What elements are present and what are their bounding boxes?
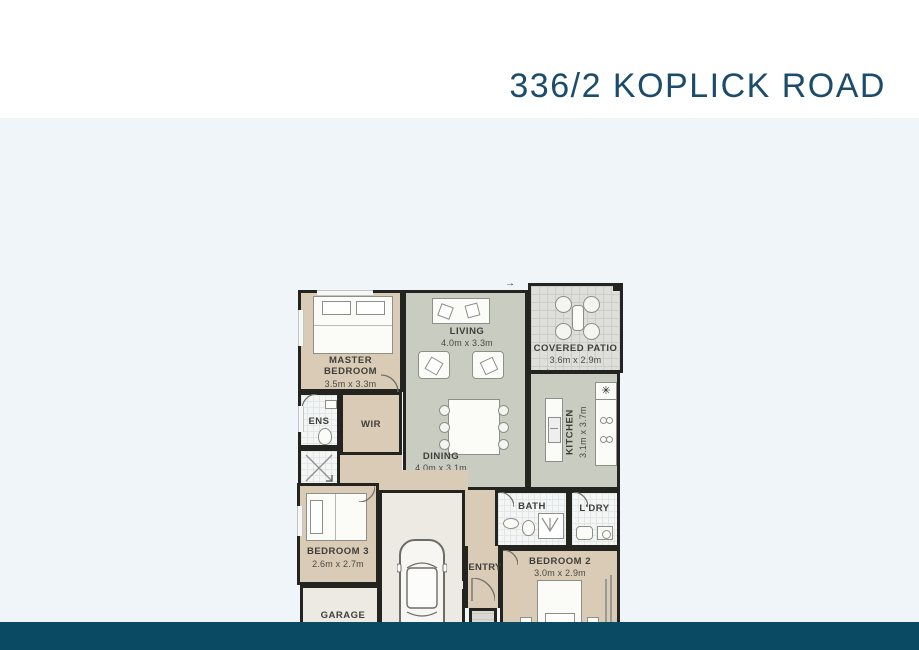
robe-door-icon (605, 579, 607, 627)
room-label: LIVING (431, 326, 503, 337)
arrow-icon: → (541, 364, 551, 375)
patio-table-icon (572, 305, 584, 331)
door-arc-icon (573, 492, 588, 507)
sink-icon (548, 417, 561, 443)
island-bench (545, 398, 563, 462)
sink-icon (503, 518, 519, 529)
toilet-icon (318, 428, 332, 445)
footer-bar (0, 622, 919, 650)
room-covered-patio: COVERED PATIO 3.6m x 2.9m (528, 283, 623, 373)
bed-icon (306, 493, 367, 541)
bed-icon (313, 296, 393, 354)
armchair-icon (472, 351, 504, 379)
patio-chair-icon (555, 323, 572, 340)
room-dims: 3.0m x 2.9m (503, 568, 617, 578)
window-gap (317, 290, 373, 296)
hallway (400, 470, 468, 490)
room-wir: WIR (340, 392, 402, 455)
room-bedroom-2: BEDROOM 2 3.0m x 2.9m (500, 548, 620, 633)
patio-post (613, 283, 621, 291)
door-arc-icon (381, 374, 399, 392)
dining-chair-icon (439, 422, 450, 433)
cooktop-icon (600, 417, 613, 443)
washer-icon (597, 526, 613, 540)
room-label: ENS (301, 416, 337, 427)
room-label: BEDROOM 2 (503, 556, 617, 567)
room-label: GARAGE (307, 610, 379, 621)
dining-table-icon (448, 399, 500, 455)
arrow-icon: → (505, 278, 515, 289)
armchair-icon (418, 351, 450, 379)
door-arc-icon (499, 492, 514, 507)
door-arc-icon (359, 486, 375, 502)
sink-icon (325, 400, 337, 409)
pillow-icon (356, 301, 385, 315)
room-entry: ENTRY (465, 546, 501, 608)
door-arc-icon (471, 578, 495, 602)
kitchen-counter: ✳ (595, 382, 617, 466)
room-dims: 2.6m x 2.7m (300, 559, 376, 569)
door-arc-icon (302, 394, 317, 409)
dining-chair-icon (439, 405, 450, 416)
room-label: BEDROOM 3 (300, 546, 376, 557)
shower-icon (304, 453, 334, 483)
floor-plan: LIVING 4.0m x 3.3m DINING 4.0m x 3.1m (293, 278, 633, 650)
room-living-dining: LIVING 4.0m x 3.3m DINING 4.0m x 3.1m (403, 290, 528, 490)
robe-door-icon (610, 575, 612, 625)
window-gap (297, 506, 303, 536)
pillow-icon (310, 500, 323, 534)
room-label: WIR (343, 419, 399, 430)
room-label: ENTRY (466, 562, 504, 573)
pillow-icon (322, 301, 351, 315)
dining-chair-icon (498, 405, 509, 416)
sofa-icon (432, 298, 490, 324)
patio-chair-icon (583, 323, 600, 340)
dining-chair-icon (498, 422, 509, 433)
patio-chair-icon (555, 296, 572, 313)
door-arc-icon (503, 550, 518, 565)
shower-icon (538, 513, 564, 539)
tub-icon (576, 526, 593, 540)
room-dims: 3.1m x 3.7m (577, 398, 589, 466)
dining-chair-icon (439, 439, 450, 450)
flyer-page: 336/2 KOPLICK ROAD LIVING 4.0m x 3.3m (0, 0, 919, 650)
toilet-icon (522, 520, 535, 536)
room-dims: 4.0m x 3.3m (431, 338, 503, 348)
window-gap (298, 310, 304, 346)
patio-chair-icon (583, 296, 600, 313)
asterisk-icon: ✳ (596, 383, 616, 400)
window-gap (298, 406, 304, 432)
page-title: 336/2 KOPLICK ROAD (509, 67, 886, 106)
room-label: COVERED PATIO (531, 343, 620, 354)
room-label: DINING (406, 451, 476, 462)
room-label: KITCHEN (563, 396, 577, 468)
ensuite-shower (298, 448, 340, 488)
floorplan-panel: LIVING 4.0m x 3.3m DINING 4.0m x 3.1m (0, 118, 919, 622)
dining-chair-icon (498, 439, 509, 450)
